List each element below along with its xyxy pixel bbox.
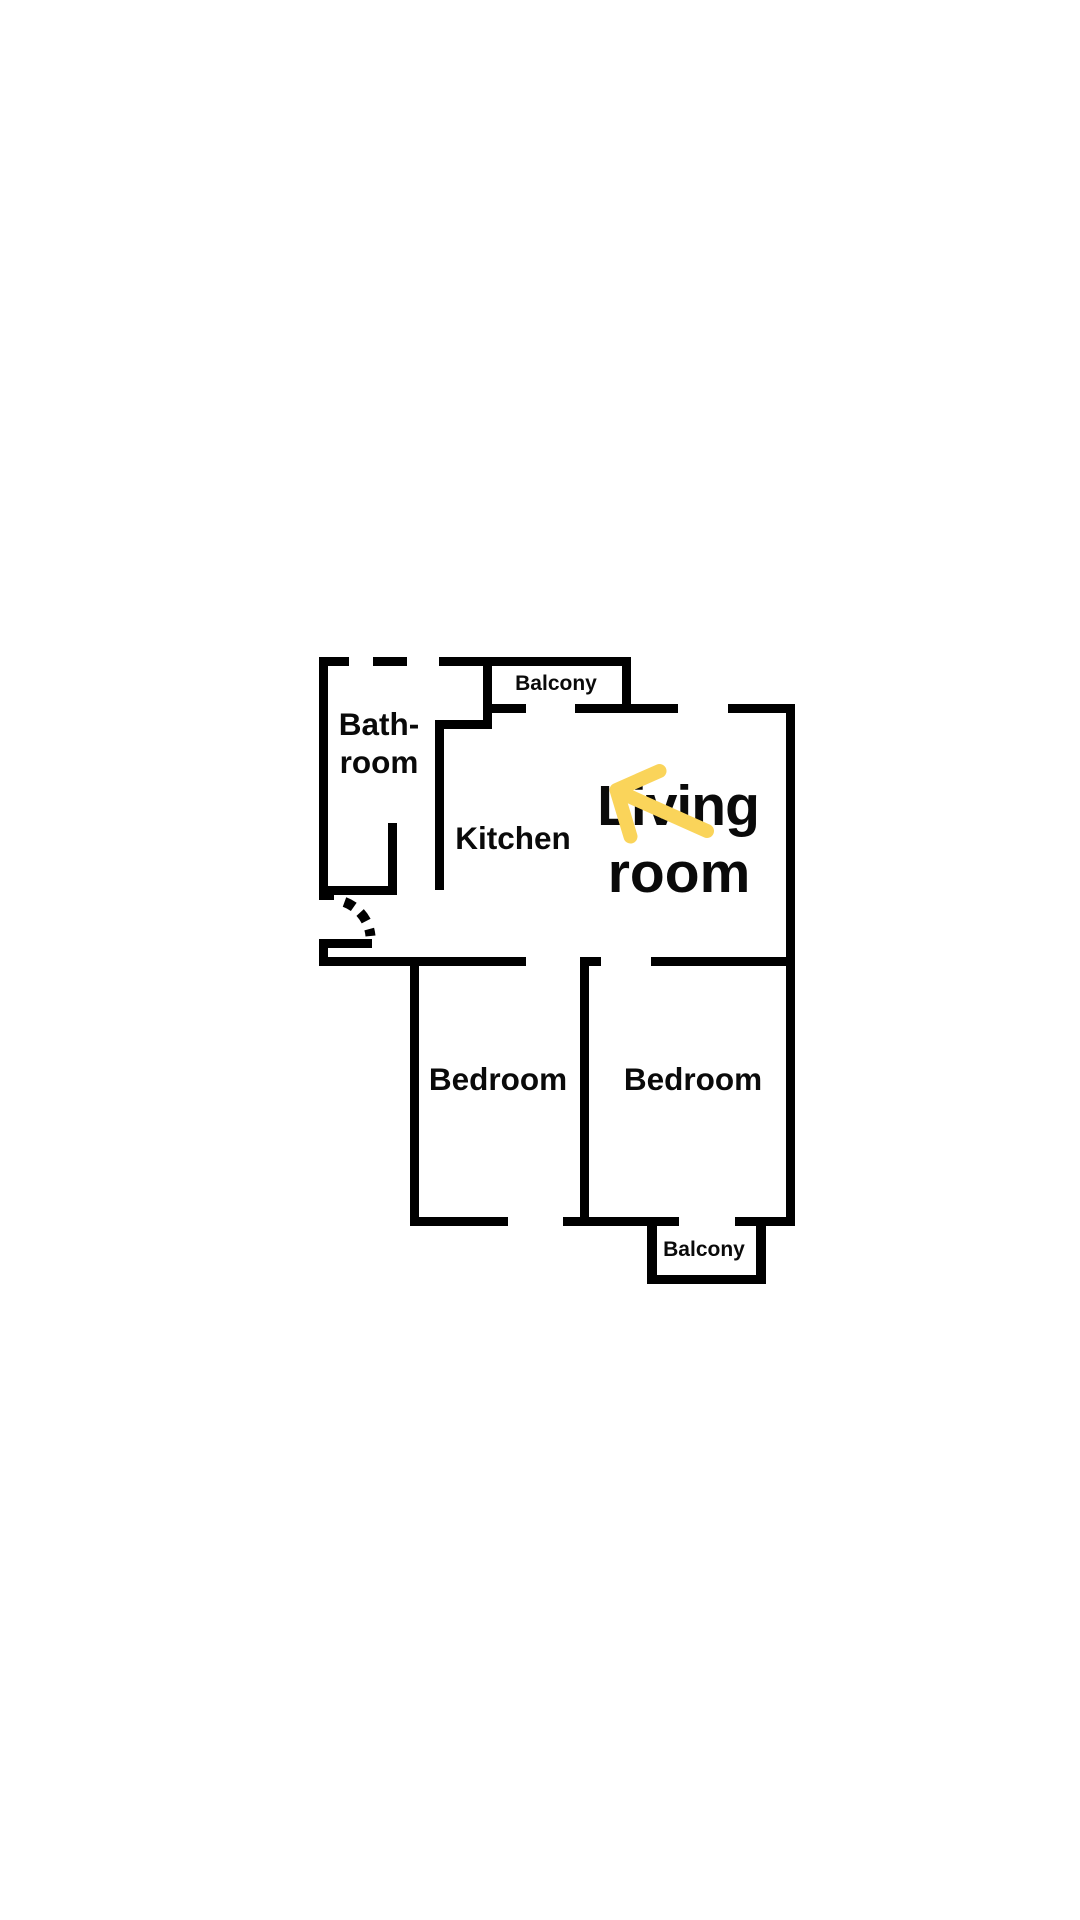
svg-text:Kitchen: Kitchen <box>455 820 571 856</box>
svg-text:Bath-: Bath- <box>339 706 420 742</box>
svg-text:room: room <box>608 841 751 905</box>
svg-text:Balcony: Balcony <box>663 1238 745 1261</box>
svg-text:Bedroom: Bedroom <box>429 1061 567 1097</box>
svg-text:Bedroom: Bedroom <box>624 1061 762 1097</box>
svg-text:Balcony: Balcony <box>515 672 597 695</box>
svg-text:room: room <box>340 744 419 780</box>
